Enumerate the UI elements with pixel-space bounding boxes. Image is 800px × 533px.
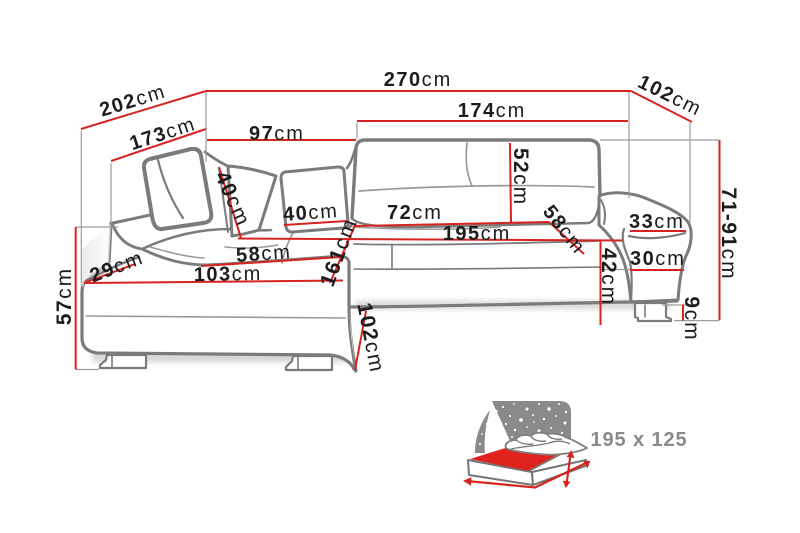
svg-text:42cm: 42cm — [598, 248, 621, 306]
svg-text:57cm: 57cm — [53, 267, 76, 325]
svg-text:71-91cm: 71-91cm — [718, 187, 741, 280]
svg-text:9cm: 9cm — [681, 296, 704, 341]
svg-text:270cm: 270cm — [384, 69, 453, 91]
svg-text:195 x 125: 195 x 125 — [590, 429, 687, 451]
svg-text:52cm: 52cm — [510, 148, 533, 206]
svg-text:97cm: 97cm — [249, 123, 305, 145]
svg-text:33cm: 33cm — [629, 211, 685, 233]
svg-text:103cm: 103cm — [194, 263, 263, 286]
svg-text:30cm: 30cm — [630, 248, 686, 270]
svg-text:72cm: 72cm — [387, 202, 443, 224]
svg-text:40cm: 40cm — [282, 200, 339, 226]
svg-text:174cm: 174cm — [458, 100, 527, 122]
svg-text:195cm: 195cm — [443, 223, 512, 245]
